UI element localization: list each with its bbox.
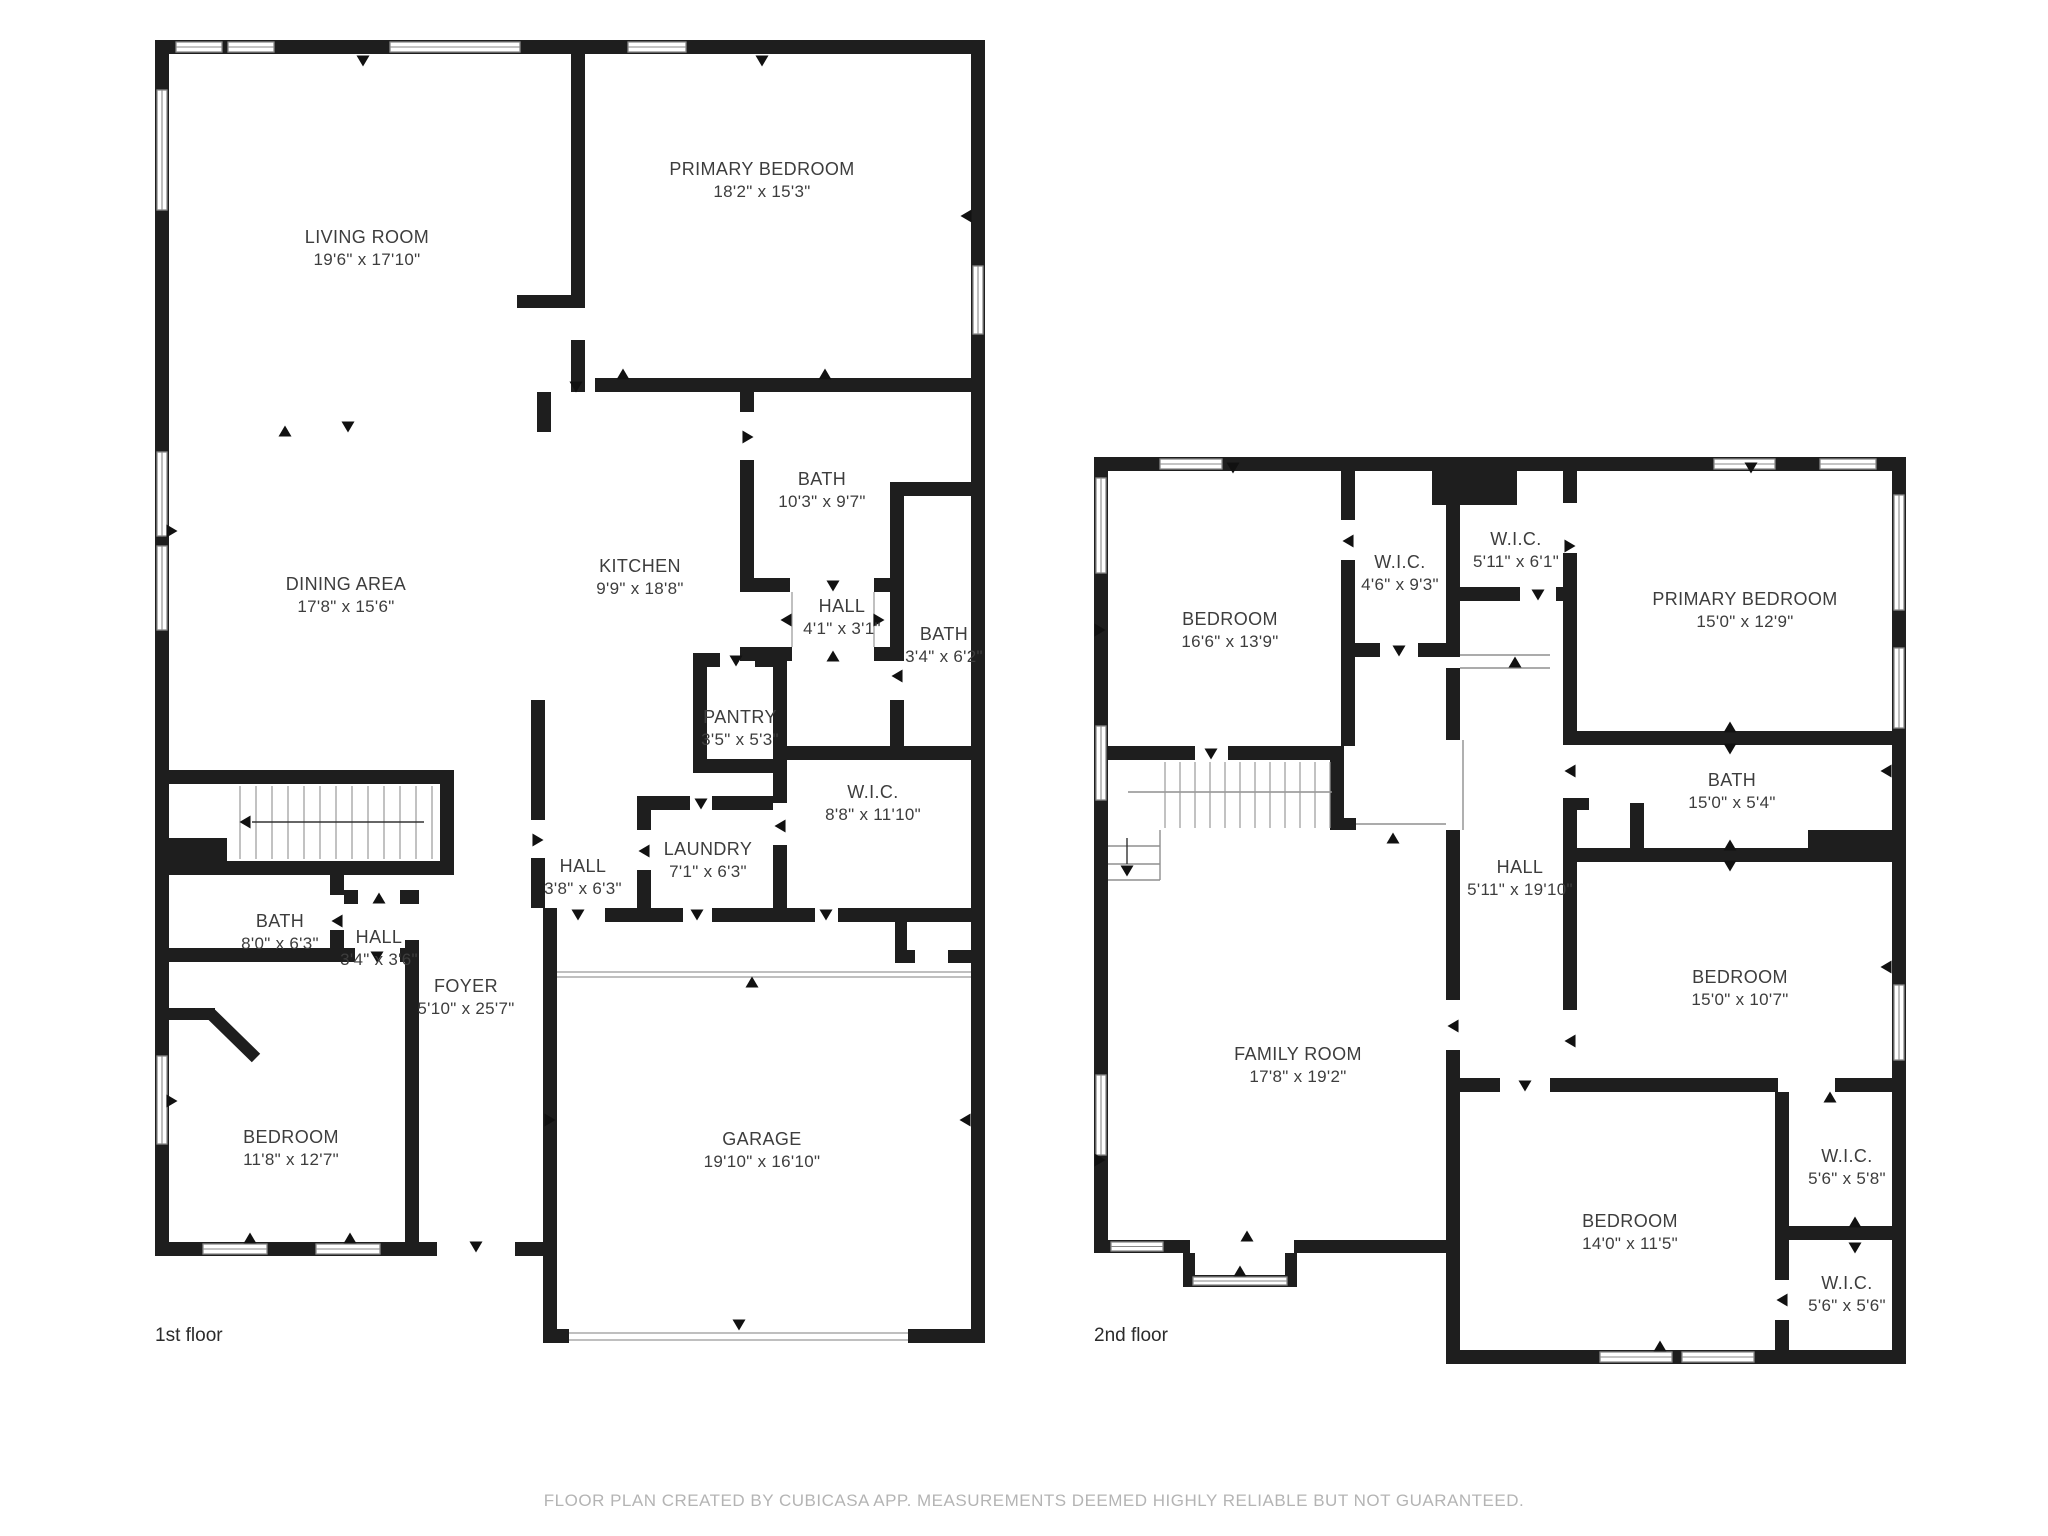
room-dims-bath-0-6: 3'4" x 6'2" <box>905 647 983 666</box>
room-dims-bedroom-1-0: 16'6" x 13'9" <box>1181 632 1278 651</box>
wall-segment <box>1835 1078 1892 1092</box>
door-opening-arrow-icon <box>1724 860 1737 871</box>
room-name-bedroom-0-14: BEDROOM <box>243 1127 339 1147</box>
door-opening-arrow-icon <box>1564 540 1575 553</box>
door-opening-arrow-icon <box>373 892 386 903</box>
wall-segment <box>1446 668 1460 740</box>
room-dims-garage-0-15: 19'10" x 16'10" <box>704 1152 821 1171</box>
wall-segment <box>1330 746 1344 830</box>
wall-segment <box>773 845 787 908</box>
room-name-bedroom-1-9: BEDROOM <box>1582 1211 1678 1231</box>
wall-segment <box>1563 553 1577 745</box>
wall-segment <box>740 578 790 592</box>
room-dims-foyer-0-13: 5'10" x 25'7" <box>417 999 514 1018</box>
wall-segment <box>330 875 344 895</box>
wall-segment <box>890 482 904 592</box>
wall-segment <box>155 40 985 54</box>
door-opening-arrow-icon <box>1880 765 1891 778</box>
room-dims-hall-0-9: 3'8" x 6'3" <box>544 879 622 898</box>
wall-segment <box>1808 830 1892 862</box>
wall-segment <box>1563 798 1577 1010</box>
door-opening-arrow-icon <box>819 368 832 379</box>
wall-segment <box>1330 818 1356 830</box>
wall-segment <box>543 908 552 922</box>
door-opening-arrow-icon <box>746 976 759 987</box>
door-opening-arrow-icon <box>1849 1242 1862 1253</box>
wall-segment <box>543 1329 569 1343</box>
door-opening-arrow-icon <box>1880 961 1891 974</box>
wall-segment <box>1563 471 1577 503</box>
door-opening-arrow-icon <box>1532 589 1545 600</box>
wall-segment <box>1550 1078 1778 1092</box>
door-opening-arrow-icon <box>1387 832 1400 843</box>
room-name-bath-0-11: BATH <box>256 911 304 931</box>
wall-segment <box>531 700 545 820</box>
door-opening-arrow-icon <box>617 368 630 379</box>
door-opening-arrow-icon <box>959 1114 970 1127</box>
floorplan-canvas: LIVING ROOM19'6" x 17'10"PRIMARY BEDROOM… <box>0 0 2048 1536</box>
wall-segment <box>1294 1240 1460 1253</box>
wall-segment <box>537 392 551 432</box>
wall-segment <box>838 908 985 922</box>
room-dims-bath-0-4: 10'3" x 9'7" <box>778 492 865 511</box>
wall-segment <box>712 908 815 922</box>
wall-segment <box>712 796 773 810</box>
room-name-w-i-c-1-10: W.I.C. <box>1821 1273 1872 1293</box>
door-opening-arrow-icon <box>774 820 785 833</box>
room-name-primary-bedroom-1-3: PRIMARY BEDROOM <box>1652 589 1837 609</box>
door-opening-arrow-icon <box>1205 748 1218 759</box>
room-dims-w-i-c-0-8: 8'8" x 11'10" <box>825 805 921 824</box>
room-dims-hall-0-5: 4'1" x 3'1" <box>803 619 881 638</box>
room-dims-bedroom-1-6: 15'0" x 10'7" <box>1691 990 1788 1009</box>
first-floor-plan <box>155 40 985 1343</box>
wall-segment <box>740 392 754 412</box>
wall-segment <box>595 378 985 392</box>
room-dims-hall-1-5: 5'11" x 19'10" <box>1467 880 1573 899</box>
wall-segment <box>637 870 651 908</box>
door-opening-arrow-icon <box>166 1095 177 1108</box>
wall-segment <box>169 770 454 784</box>
wall-segment <box>440 770 454 875</box>
room-dims-w-i-c-1-10: 5'6" x 5'6" <box>1808 1296 1886 1315</box>
room-name-laundry-0-10: LAUNDRY <box>664 839 753 859</box>
door-opening-arrow-icon <box>344 1232 357 1243</box>
door-opening-arrow-icon <box>1724 839 1737 850</box>
room-name-hall-0-9: HALL <box>560 856 607 876</box>
wall-segment <box>890 700 904 746</box>
second-floor-label: 2nd floor <box>1094 1325 1169 1346</box>
door-opening-arrow-icon <box>239 816 250 829</box>
angled-wall-segment <box>211 1014 256 1058</box>
room-dims-hall-0-12: 3'4" x 3'6" <box>340 950 418 969</box>
door-opening-arrow-icon <box>1724 743 1737 754</box>
wall-segment <box>1775 1240 1789 1280</box>
room-dims-pantry-0-7: 3'5" x 5'3" <box>701 730 779 749</box>
wall-segment <box>1228 746 1330 760</box>
room-name-garage-0-15: GARAGE <box>722 1129 801 1149</box>
wall-segment <box>1341 560 1355 657</box>
door-opening-arrow-icon <box>691 909 704 920</box>
door-opening-arrow-icon <box>695 798 708 809</box>
door-opening-arrow-icon <box>733 1319 746 1330</box>
room-name-w-i-c-1-2: W.I.C. <box>1490 529 1541 549</box>
room-dims-primary-bedroom-1-3: 15'0" x 12'9" <box>1696 612 1793 631</box>
door-opening-arrow-icon <box>166 525 177 538</box>
room-name-hall-0-5: HALL <box>819 596 866 616</box>
wall-segment <box>773 746 985 760</box>
wall-segment <box>1341 643 1355 746</box>
door-opening-arrow-icon <box>1564 1035 1575 1048</box>
door-opening-arrow-icon <box>279 425 292 436</box>
wall-segment <box>1446 601 1460 655</box>
wall-segment <box>773 653 787 803</box>
wall-segment <box>1446 1350 1906 1364</box>
first-floor-label: 1st floor <box>155 1325 223 1346</box>
door-opening-arrow-icon <box>470 1241 483 1252</box>
door-opening-arrow-icon <box>827 580 840 591</box>
wall-segment <box>344 890 358 904</box>
room-dims-family-room-1-7: 17'8" x 19'2" <box>1249 1067 1346 1086</box>
door-opening-arrow-icon <box>1241 1230 1254 1241</box>
door-opening-arrow-icon <box>820 909 833 920</box>
door-opening-arrow-icon <box>638 845 649 858</box>
door-opening-arrow-icon <box>891 670 902 683</box>
door-opening-arrow-icon <box>1564 765 1575 778</box>
wall-segment <box>1432 471 1517 505</box>
room-name-bath-1-4: BATH <box>1708 770 1756 790</box>
wall-segment <box>1775 1320 1789 1350</box>
wall-segment <box>1630 803 1644 852</box>
room-name-w-i-c-1-8: W.I.C. <box>1821 1146 1872 1166</box>
room-name-foyer-0-13: FOYER <box>434 976 498 996</box>
wall-segment <box>1460 587 1520 601</box>
wall-segment <box>895 950 915 963</box>
door-opening-arrow-icon <box>1776 1294 1787 1307</box>
wall-segment <box>1446 830 1460 1000</box>
wall-segment <box>874 578 890 592</box>
door-opening-arrow-icon <box>1447 1020 1458 1033</box>
room-dims-laundry-0-10: 7'1" x 6'3" <box>669 862 747 881</box>
wall-segment <box>1775 1092 1789 1226</box>
disclaimer-text: FLOOR PLAN CREATED BY CUBICASA APP. MEAS… <box>544 1491 1524 1510</box>
door-opening-arrow-icon <box>780 614 791 627</box>
wall-segment <box>531 858 545 908</box>
wall-segment <box>693 759 787 773</box>
wall-segment <box>1775 1226 1892 1240</box>
wall-segment <box>1567 848 1808 862</box>
wall-segment <box>1567 798 1589 810</box>
door-opening-arrow-icon <box>1342 535 1353 548</box>
room-dims-w-i-c-1-8: 5'6" x 5'8" <box>1808 1169 1886 1188</box>
wall-segment <box>155 838 227 875</box>
door-opening-arrow-icon <box>1393 645 1406 656</box>
room-dims-bedroom-1-9: 14'0" x 11'5" <box>1582 1234 1678 1253</box>
door-opening-arrow-icon <box>960 210 971 223</box>
door-opening-arrow-icon <box>244 1232 257 1243</box>
room-dims-bath-1-4: 15'0" x 5'4" <box>1688 793 1775 812</box>
room-name-pantry-0-7: PANTRY <box>703 707 777 727</box>
door-opening-arrow-icon <box>1654 1340 1667 1351</box>
wall-segment <box>1446 1092 1460 1364</box>
door-opening-arrow-icon <box>1509 656 1522 667</box>
wall-segment <box>971 40 985 1343</box>
door-opening-arrow-icon <box>827 650 840 661</box>
room-name-w-i-c-0-8: W.I.C. <box>847 782 898 802</box>
door-opening-arrow-icon <box>1519 1080 1532 1091</box>
room-name-kitchen-0-3: KITCHEN <box>599 556 681 576</box>
room-name-hall-1-5: HALL <box>1497 857 1544 877</box>
wall-segment <box>155 1008 215 1020</box>
room-name-dining-area-0-2: DINING AREA <box>286 574 406 594</box>
wall-segment <box>1446 1050 1460 1078</box>
wall-segment <box>1446 471 1460 601</box>
wall-segment <box>948 950 971 963</box>
wall-segment <box>1108 746 1195 760</box>
room-name-bedroom-1-0: BEDROOM <box>1182 609 1278 629</box>
wall-segment <box>419 1242 437 1256</box>
room-dims-bath-0-11: 8'0" x 6'3" <box>241 934 319 953</box>
wall-segment <box>693 653 720 667</box>
door-opening-arrow-icon <box>532 834 543 847</box>
wall-segment <box>1341 471 1355 520</box>
door-opening-arrow-icon <box>331 915 342 928</box>
room-name-hall-0-12: HALL <box>356 927 403 947</box>
wall-segment <box>405 890 419 900</box>
room-dims-kitchen-0-3: 9'9" x 18'8" <box>596 579 683 598</box>
wall-segment <box>1446 1078 1500 1092</box>
room-dims-w-i-c-1-2: 5'11" x 6'1" <box>1473 552 1559 571</box>
door-opening-arrow-icon <box>357 55 370 66</box>
door-opening-arrow-icon <box>1234 1265 1247 1276</box>
wall-segment <box>740 460 754 592</box>
room-name-living-room-0-0: LIVING ROOM <box>305 227 429 247</box>
room-dims-primary-bedroom-0-1: 18'2" x 15'3" <box>713 182 810 201</box>
door-opening-arrow-icon <box>756 55 769 66</box>
room-name-bath-0-6: BATH <box>920 624 968 644</box>
room-name-primary-bedroom-0-1: PRIMARY BEDROOM <box>669 159 854 179</box>
room-name-family-room-1-7: FAMILY ROOM <box>1234 1044 1362 1064</box>
wall-segment <box>890 592 904 650</box>
wall-segment <box>637 796 651 830</box>
door-opening-arrow-icon <box>742 431 753 444</box>
wall-segment <box>1341 643 1380 657</box>
room-dims-living-room-0-0: 19'6" x 17'10" <box>314 250 421 269</box>
door-opening-arrow-icon <box>1849 1216 1862 1227</box>
room-name-bath-0-4: BATH <box>798 469 846 489</box>
wall-segment <box>517 295 585 308</box>
door-opening-arrow-icon <box>342 421 355 432</box>
room-dims-w-i-c-1-1: 4'6" x 9'3" <box>1361 575 1439 594</box>
door-opening-arrow-icon <box>1824 1091 1837 1102</box>
door-opening-arrow-icon <box>1121 865 1134 876</box>
door-opening-arrow-icon <box>1724 721 1737 732</box>
wall-segment <box>908 1329 985 1343</box>
wall-segment <box>571 54 585 300</box>
door-opening-arrow-icon <box>572 909 585 920</box>
wall-segment <box>755 653 773 667</box>
room-dims-bedroom-0-14: 11'8" x 12'7" <box>243 1150 339 1169</box>
wall-segment <box>1577 731 1892 745</box>
room-name-w-i-c-1-1: W.I.C. <box>1374 552 1425 572</box>
room-name-bedroom-1-6: BEDROOM <box>1692 967 1788 987</box>
room-dims-dining-area-0-2: 17'8" x 15'6" <box>297 597 394 616</box>
wall-segment <box>605 908 683 922</box>
floorplan-page: LIVING ROOM19'6" x 17'10"PRIMARY BEDROOM… <box>0 0 2048 1536</box>
